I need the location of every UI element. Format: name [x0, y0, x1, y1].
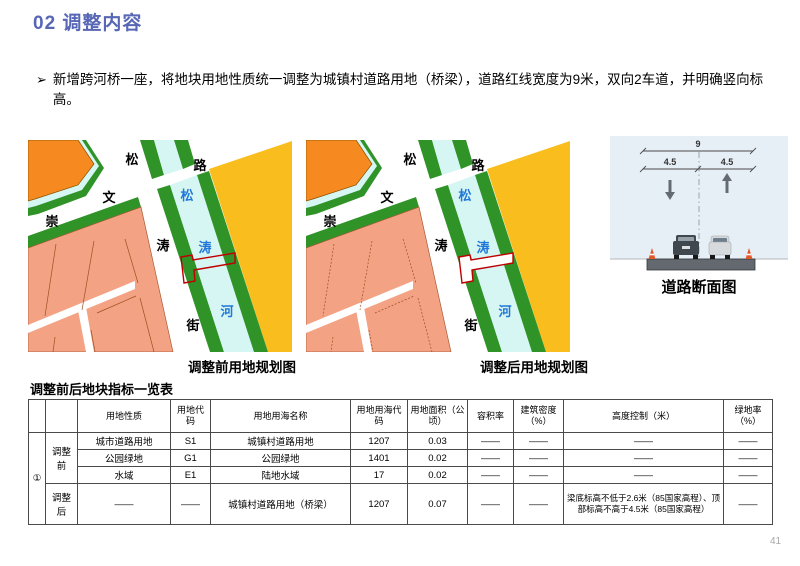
- cell: G1: [171, 450, 211, 467]
- street-label: 街: [185, 318, 199, 333]
- cell: 17: [351, 467, 408, 484]
- group-id-cell: ①: [29, 433, 46, 525]
- river-label: 河: [498, 304, 511, 319]
- cell: 1401: [351, 450, 408, 467]
- cell: ——: [514, 484, 564, 525]
- header-cell: 容积率: [468, 400, 514, 433]
- header-cell: 用地代码: [171, 400, 211, 433]
- cell: ——: [468, 484, 514, 525]
- cell: ——: [514, 467, 564, 484]
- street-label: 文: [102, 190, 116, 205]
- cell: ——: [514, 450, 564, 467]
- cell: 1207: [351, 484, 408, 525]
- slide: 02 调整内容 ➢ 新增跨河桥一座，将地块用地性质统一调整为城镇村道路用地（桥梁…: [0, 0, 800, 566]
- river-label: 松: [180, 188, 193, 203]
- cell: 陆地水域: [211, 467, 351, 484]
- cell: ——: [564, 467, 724, 484]
- river-label: 松: [458, 188, 471, 203]
- cell: ——: [564, 433, 724, 450]
- cell: S1: [171, 433, 211, 450]
- street-label: 路: [193, 158, 207, 173]
- cell: ——: [468, 450, 514, 467]
- landuse-map-after: 松 路 文 崇 涛 街 松 涛 河: [306, 140, 570, 352]
- street-label: 街: [463, 318, 477, 333]
- street-label: 涛: [156, 238, 169, 253]
- street-label: 涛: [434, 238, 447, 253]
- river-label: 涛: [476, 240, 489, 255]
- header-cell: 高度控制（米）: [564, 400, 724, 433]
- table-header-row: 用地性质 用地代码 用地用海名称 用地用海代码 用地面积（公顷） 容积率 建筑密…: [29, 400, 773, 433]
- table-title: 调整前后地块指标一览表: [30, 379, 173, 398]
- lane-right-label: 4.5: [721, 157, 734, 167]
- page-title: 02 调整内容: [33, 8, 142, 35]
- cell: ——: [468, 467, 514, 484]
- cell: 公园绿地: [211, 450, 351, 467]
- cell: ——: [564, 450, 724, 467]
- map-before-caption: 调整前用地规划图: [28, 356, 296, 376]
- bridge-deck: [647, 259, 755, 270]
- table-row: 调整后 —— —— 城镇村道路用地（桥梁） 1207 0.07 —— —— 梁底…: [29, 484, 773, 525]
- cell: 0.07: [408, 484, 468, 525]
- header-cell: 用地用海代码: [351, 400, 408, 433]
- street-label: 崇: [45, 214, 58, 229]
- landuse-map-before-svg: 松 路 文 崇 涛 街 松 涛 河: [28, 140, 292, 352]
- cell: 0.02: [408, 467, 468, 484]
- street-label: 崇: [323, 214, 336, 229]
- river-label: 河: [220, 304, 233, 319]
- after-group-label: 调整后: [46, 484, 78, 525]
- page-number: 41: [770, 536, 781, 547]
- road-cross-section-figure: 9 4.5 4.5: [610, 136, 788, 272]
- header-cell: 用地性质: [78, 400, 171, 433]
- cell: 0.03: [408, 433, 468, 450]
- cell: 城镇村道路用地: [211, 433, 351, 450]
- cross-section-caption: 道路断面图: [610, 276, 788, 297]
- cell: 城市道路用地: [78, 433, 171, 450]
- lane-left-label: 4.5: [664, 157, 677, 167]
- header-cell: [46, 400, 78, 433]
- road-cross-section-svg: 9 4.5 4.5: [610, 136, 788, 272]
- cell: ——: [78, 484, 171, 525]
- before-group-label: 调整前: [46, 433, 78, 484]
- header-cell: 绿地率（%）: [724, 400, 773, 433]
- cell: 城镇村道路用地（桥梁）: [211, 484, 351, 525]
- cell: ——: [724, 450, 773, 467]
- cell: E1: [171, 467, 211, 484]
- table-row: ① 调整前 城市道路用地 S1 城镇村道路用地 1207 0.03 —— —— …: [29, 433, 773, 450]
- river-label: 涛: [198, 240, 211, 255]
- cell: ——: [468, 433, 514, 450]
- bullet-text: 新增跨河桥一座，将地块用地性质统一调整为城镇村道路用地（桥梁），道路红线宽度为9…: [53, 70, 778, 110]
- header-cell: [29, 400, 46, 433]
- cell: 0.02: [408, 450, 468, 467]
- landuse-map-after-svg: 松 路 文 崇 涛 街 松 涛 河: [306, 140, 570, 352]
- cell: ——: [724, 433, 773, 450]
- street-label: 松: [403, 152, 416, 167]
- plot-indicator-table: 用地性质 用地代码 用地用海名称 用地用海代码 用地面积（公顷） 容积率 建筑密…: [28, 399, 773, 525]
- cell: 公园绿地: [78, 450, 171, 467]
- table-row: 水域 E1 陆地水域 17 0.02 —— —— —— ——: [29, 467, 773, 484]
- total-width-label: 9: [695, 139, 700, 149]
- height-control-cell: 梁底标高不低于2.6米（85国家高程）、顶部标高不高于4.5米（85国家高程）: [564, 484, 724, 525]
- header-cell: 用地用海名称: [211, 400, 351, 433]
- bullet-paragraph: ➢ 新增跨河桥一座，将地块用地性质统一调整为城镇村道路用地（桥梁），道路红线宽度…: [36, 70, 778, 110]
- cell: 1207: [351, 433, 408, 450]
- map-after-caption: 调整后用地规划图: [306, 356, 588, 376]
- cell: ——: [724, 484, 773, 525]
- header-cell: 用地面积（公顷）: [408, 400, 468, 433]
- landuse-map-before: 松 路 文 崇 涛 街 松 涛 河: [28, 140, 292, 352]
- bullet-arrow-icon: ➢: [36, 70, 47, 110]
- street-label: 松: [125, 152, 138, 167]
- table-row: 公园绿地 G1 公园绿地 1401 0.02 —— —— —— ——: [29, 450, 773, 467]
- cell: ——: [171, 484, 211, 525]
- cell: 水域: [78, 467, 171, 484]
- cell: ——: [724, 467, 773, 484]
- cell: ——: [514, 433, 564, 450]
- street-label: 路: [471, 158, 485, 173]
- street-label: 文: [380, 190, 394, 205]
- header-cell: 建筑密度（%）: [514, 400, 564, 433]
